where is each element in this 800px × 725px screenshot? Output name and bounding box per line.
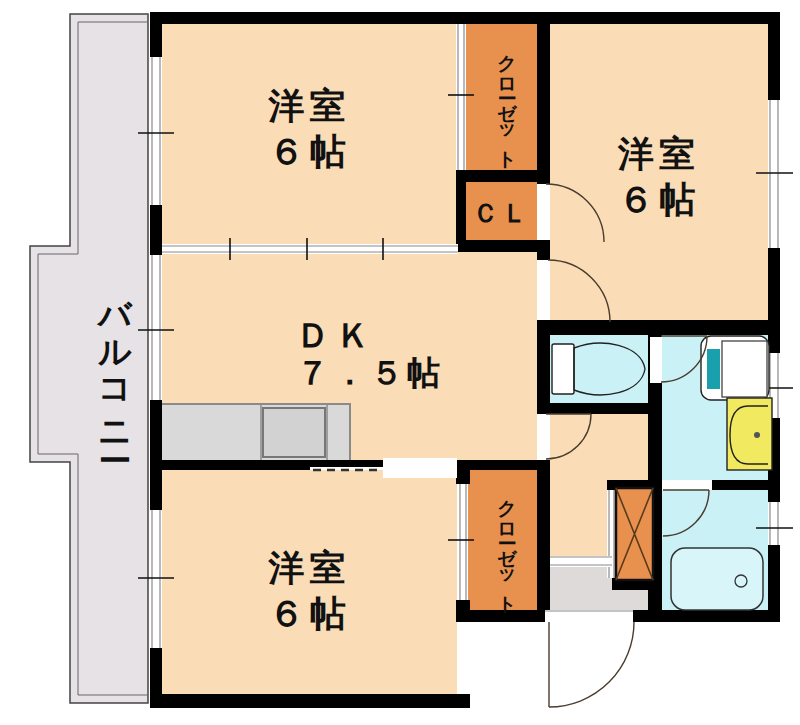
entrance-door-arc	[549, 622, 634, 707]
shoe-cabinet	[616, 488, 653, 580]
dk-label: ＤＫ	[296, 318, 496, 352]
closet-top-label: クローゼット	[487, 30, 517, 172]
bathtub-icon	[671, 548, 763, 610]
closet-cl-label: ＣＬ	[466, 200, 537, 226]
bedroom-top-right-label: 洋室	[550, 136, 768, 172]
kitchen-sink	[263, 408, 325, 457]
balcony-label: バルコニー	[94, 262, 132, 462]
wash-basin-icon	[727, 398, 772, 470]
bedroom-bottom-size: ６帖	[163, 596, 456, 632]
kitchen-counter	[156, 404, 350, 461]
floor-plan: 洋室 ６帖 洋室 ６帖 洋室 ６帖 ＤＫ ７．５帖 ＣＬ クローゼット クローゼ…	[0, 0, 800, 725]
bedroom-top-right-size: ６帖	[550, 182, 768, 218]
closet-bottom-label: クローゼット	[487, 478, 517, 614]
bedroom-top-left-label: 洋室	[163, 88, 456, 124]
bedroom-bottom-label: 洋室	[163, 550, 456, 586]
bedroom-top-left-size: ６帖	[163, 134, 456, 170]
toilet-door-opening	[650, 337, 662, 383]
washing-machine-icon	[701, 336, 769, 400]
dk-size: ７．５帖	[296, 356, 516, 389]
